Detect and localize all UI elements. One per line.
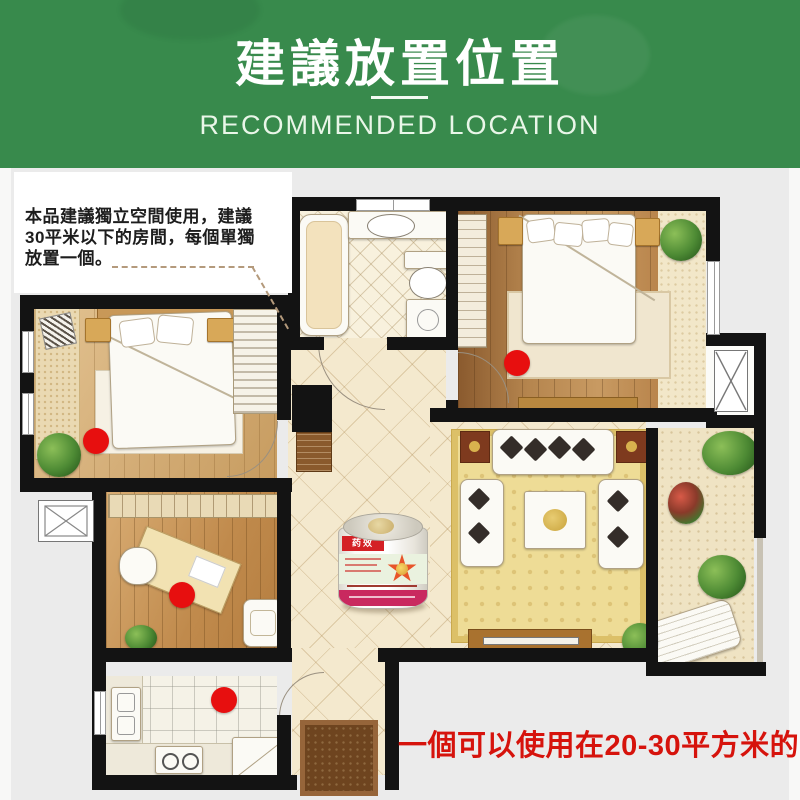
pillow	[607, 222, 635, 248]
placement-dot	[211, 687, 237, 713]
pillow	[553, 222, 584, 248]
nightstand	[207, 318, 235, 342]
washing-machine	[406, 299, 450, 341]
left-shaft-symbol	[38, 500, 94, 542]
bookshelf	[108, 494, 278, 518]
bathroom-sink	[367, 214, 415, 238]
left-edge-strip	[0, 168, 11, 800]
banner-title: 建議放置位置	[0, 24, 800, 96]
tip-text: 本品建議獨立空間使用，建議 30平米以下的房間，每個單獨 放置一個。	[25, 206, 285, 269]
wall-left-outer	[20, 295, 34, 488]
wall-shaft-bottom	[706, 415, 766, 428]
toilet	[409, 267, 447, 299]
wall-top	[288, 197, 717, 211]
plant	[660, 219, 702, 261]
balcony-plant	[698, 555, 746, 599]
wall-bath-bottom-left	[288, 337, 324, 350]
nightstand	[85, 318, 111, 342]
master-window	[707, 261, 720, 335]
wall-shaft-right	[754, 346, 766, 415]
wardrobe	[453, 214, 487, 348]
bedroom-wardrobe	[233, 309, 279, 414]
coffee-table	[524, 491, 586, 549]
wall-study-kitchen	[92, 648, 292, 662]
wall-study-right	[277, 492, 291, 662]
magazine-rack	[39, 312, 77, 350]
kitchen-door-arc	[279, 672, 324, 717]
doormat	[300, 720, 378, 796]
wall-bedroom-top	[20, 295, 292, 309]
wall-entry-right	[385, 648, 399, 790]
can-lid	[343, 513, 423, 541]
banner-subtitle: RECOMMENDED LOCATION	[0, 110, 800, 141]
leader-line-horizontal	[112, 266, 254, 268]
banner: 建議放置位置 RECOMMENDED LOCATION	[0, 0, 800, 168]
tip-line-1: 本品建議獨立空間使用，建議	[25, 206, 285, 227]
wall-bath-bottom-right	[387, 337, 458, 350]
kitchen-window	[94, 691, 106, 735]
wall-bedroom-study	[20, 478, 292, 492]
product-can: 药效	[338, 513, 428, 613]
can-label-pink-band	[339, 590, 427, 606]
wall-living-balcony	[646, 428, 658, 662]
hall-cabinet	[296, 432, 332, 472]
placement-dot	[83, 428, 109, 454]
structural-column	[292, 385, 332, 432]
wall-living-bottom	[378, 648, 658, 662]
wall-bathroom-master	[446, 197, 458, 350]
pillow	[156, 314, 195, 346]
stove	[155, 746, 203, 774]
balcony-railing	[757, 538, 763, 662]
wall-right-outer-top	[706, 197, 720, 261]
bedroom-window-1	[22, 331, 34, 373]
side-table	[616, 431, 647, 463]
pillow	[118, 317, 155, 348]
bathtub	[299, 214, 349, 336]
nightstand	[498, 217, 523, 245]
tip-box: 本品建議獨立空間使用，建議 30平米以下的房間，每個單獨 放置一個。	[14, 172, 292, 293]
bathroom-window	[356, 199, 430, 211]
placement-dot	[504, 350, 530, 376]
bedroom-window-2	[22, 393, 34, 435]
can-contents	[368, 518, 394, 534]
elevator-shaft-symbol	[714, 350, 748, 412]
wall-balcony-right	[754, 428, 766, 538]
banner-divider	[371, 96, 428, 99]
pillow	[526, 217, 557, 244]
tip-line-2: 30平米以下的房間，每個單獨	[25, 227, 285, 248]
wall-kitchen-bottom	[92, 775, 297, 790]
wall-study-left	[92, 492, 106, 662]
wall-master-bottom	[430, 408, 717, 422]
caption-text: 一個可以使用在20-30平方米的空間	[398, 722, 778, 762]
wall-bedroom-right	[277, 309, 291, 420]
plant	[37, 433, 81, 477]
side-table	[460, 431, 490, 463]
right-edge-strip	[789, 168, 800, 800]
nightstand	[635, 218, 660, 246]
kitchen-sink	[111, 687, 141, 741]
wall-kitchen-right-low	[277, 715, 291, 790]
placement-dot	[169, 582, 195, 608]
balcony-plant	[702, 431, 758, 475]
desk-chair	[119, 547, 157, 585]
balcony-flowers	[668, 482, 704, 524]
wall-balcony-bottom	[646, 662, 766, 676]
